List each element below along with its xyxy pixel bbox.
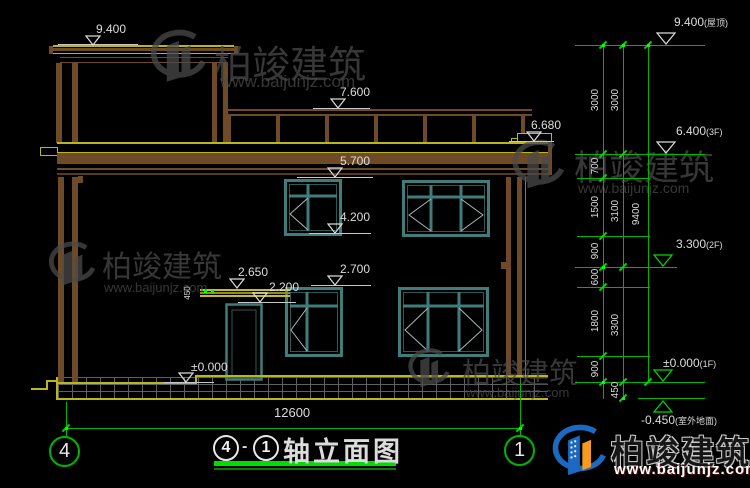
dim-text: 3000 [589,78,603,122]
watermark-url: www.baijunjz.com [220,72,355,92]
level-triangle-icon [330,98,346,109]
eave-left-step [40,147,58,156]
dim-text: 3300 [609,303,623,347]
railing-top-rail [225,114,532,116]
level-triangle-icon [85,35,101,46]
eave-fascia [57,153,548,164]
level-label: 3.300(2F) [676,237,723,251]
dim-chain-line [603,46,604,399]
dim-text: 1800 [589,299,603,343]
railing-post [325,116,329,142]
watermark-logo-icon [42,240,100,294]
level-ext-line [638,398,705,399]
right-wall-column [506,177,522,375]
eave-soffit-line [57,168,548,170]
level-triangle-icon [656,141,676,154]
door-canopy-bottom [200,295,290,297]
level-triangle-icon [229,278,245,289]
dim-text: 3100 [609,189,623,233]
grid-bubble-1: 1 [504,435,535,466]
level-triangle-icon [178,372,194,383]
dim-text: 3000 [609,78,623,122]
level-label: 7.600 [340,85,370,99]
canopy-grip-dot [204,290,207,293]
brand-logo-url: www.baijunjz.com [614,461,750,478]
column-bracket [501,262,506,269]
level-ext-line [577,236,650,237]
level-label: 2.200 [269,280,299,294]
level-triangle-icon [653,369,673,382]
level-label: 9.400(屋顶) [674,15,728,29]
pergola-slab-left-cap [49,46,53,54]
level-label: ±0.000(1F) [663,356,716,370]
level-label: 2.650 [238,265,268,279]
level-triangle-icon [526,131,542,142]
title-axis-to: 1 [253,435,279,461]
railing-top-rail [225,109,532,111]
level-label: 6.400(3F) [676,124,723,138]
dim-text: 900 [589,347,603,391]
railing-post [423,116,427,142]
watermark-logo-icon [504,138,570,198]
canopy-thickness-dim: 450 [181,271,195,315]
dim-chain-line [648,46,649,383]
right-wall-trim-line [525,177,526,375]
dim-text: 9400 [630,192,644,236]
level-label: 9.400 [96,22,126,36]
dim-chain-line [623,46,624,399]
brand-logo-icon [545,423,611,485]
level-triangle-icon [327,223,343,234]
entry-door [225,303,263,381]
left-column-upper [56,63,78,143]
watermark-logo-icon [402,347,454,395]
dim-text: 600 [589,255,603,299]
watermark-logo-icon [140,28,214,92]
title-axis-from: 4 [213,435,239,461]
level-triangle-icon [653,254,673,267]
grid-line-4 [66,402,67,437]
title-separator: - [242,438,247,456]
railing-post [472,116,476,142]
canopy-grip-dot [211,290,214,293]
level-label: ±0.000 [191,360,228,374]
overall-dim-line [66,428,520,429]
railing-post [227,116,231,142]
overall-width-dim: 12600 [274,405,310,420]
window-2f-right [402,180,490,237]
level-ext-line [575,45,705,46]
dim-text: 700 [589,144,603,188]
window-1f-left [285,287,343,357]
column-bracket [78,176,83,183]
level-triangle-icon [252,292,268,303]
watermark-url: www.baijunjz.com [466,385,569,400]
level-triangle-icon [653,400,673,413]
level-label: 2.700 [340,262,370,276]
level-triangle-icon [327,275,343,286]
level-label: 5.700 [340,154,370,168]
level-ext-line [577,178,650,179]
level-label: 4.200 [340,210,370,224]
elevation-drawing: 柏竣建筑 www.baijunjz.com 柏竣建筑 www.baijunjz.… [0,0,750,488]
eave-soffit-line [57,173,548,175]
dim-text: 450 [609,368,623,412]
level-ext-line [577,356,650,357]
level-triangle-icon [656,32,676,45]
terrain-step [31,388,48,390]
level-triangle-icon [327,167,343,178]
level-label: -0.450(室外地面) [641,413,717,427]
railing-post [374,116,378,142]
level-ext-line [577,287,650,288]
dim-text: 1500 [589,185,603,229]
level-label: 6.680 [531,118,561,132]
parapet-band [57,142,552,153]
drawing-title: 轴立面图 [283,430,403,469]
grid-bubble-4: 4 [49,436,80,467]
railing-post [276,116,280,142]
